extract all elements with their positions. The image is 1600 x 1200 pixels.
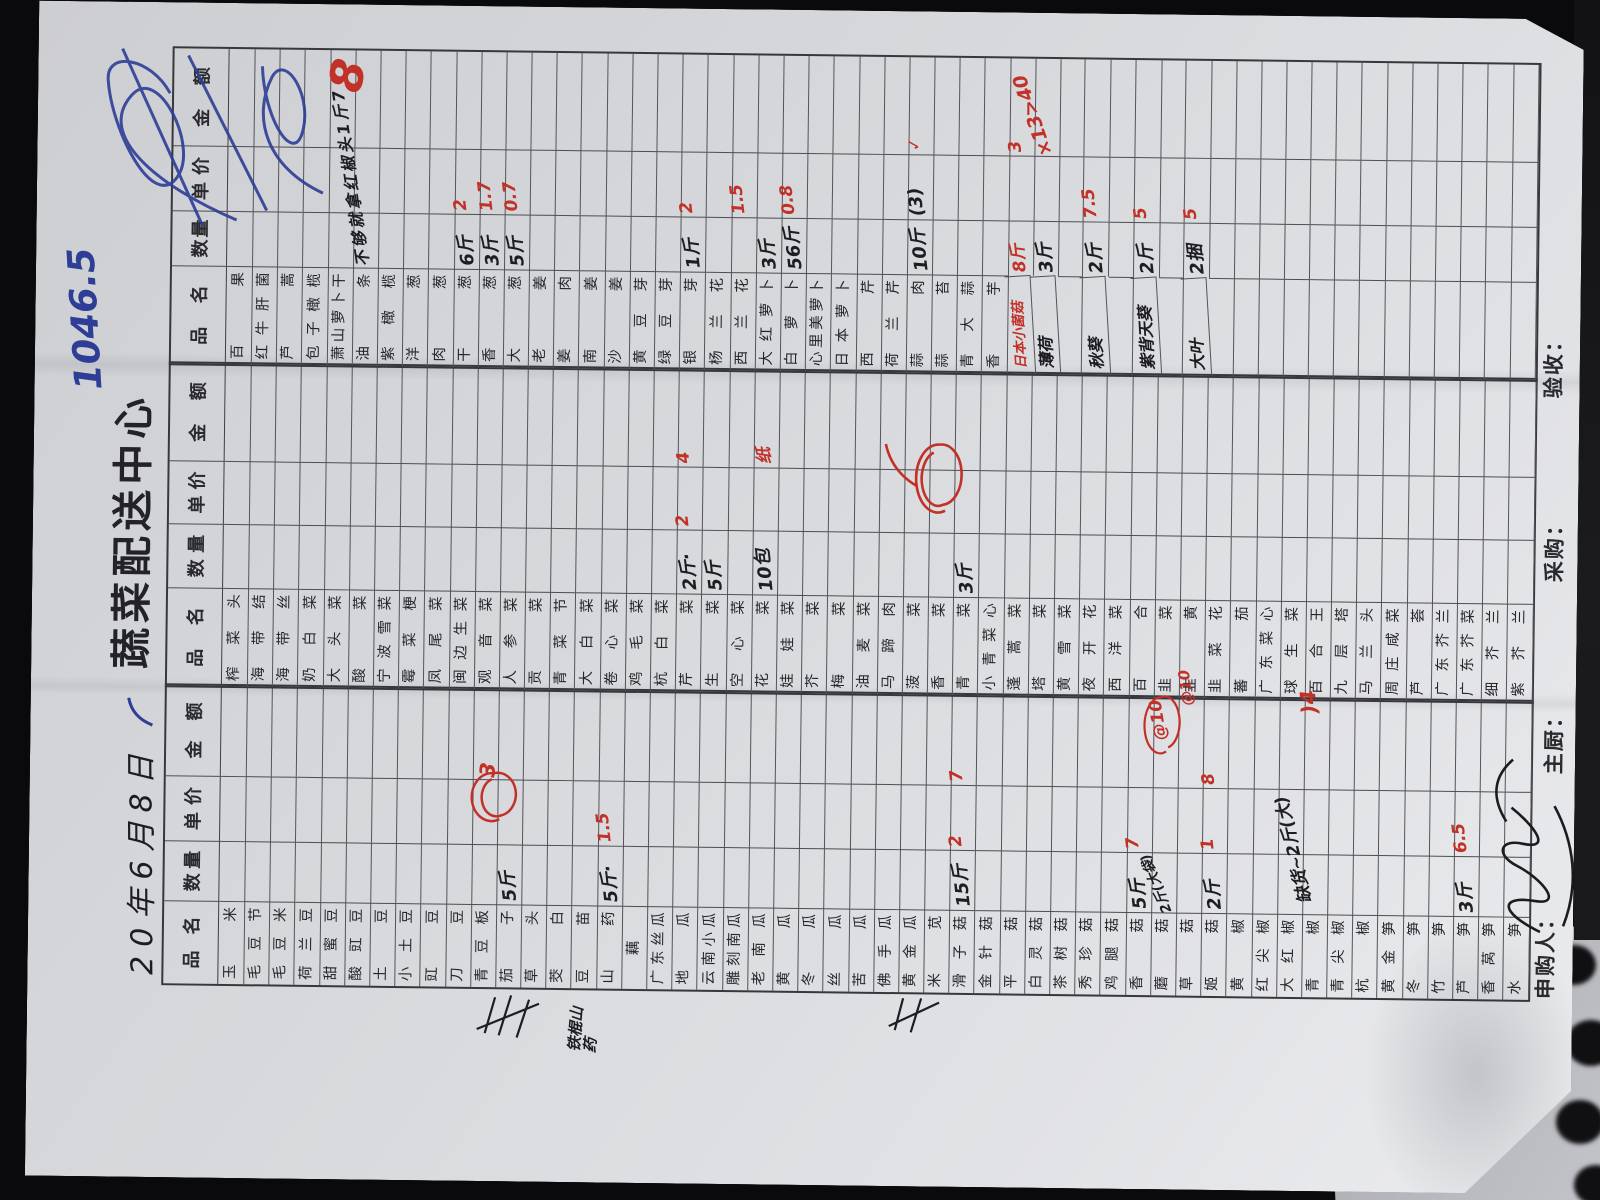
qty-cell: 5斤· <box>597 845 624 905</box>
item-name: 球生菜 <box>1280 601 1307 699</box>
item-name-char: 蒿 <box>1003 640 1028 655</box>
qty-cell <box>1360 225 1386 280</box>
price-cell <box>1001 785 1028 850</box>
item-name: 闽边生菜 <box>449 591 476 689</box>
price-value: (3) <box>904 186 928 217</box>
item-name-char: 子 <box>496 910 521 925</box>
price-cell <box>778 468 805 531</box>
qty-cell <box>1029 534 1056 598</box>
item-name-char: 合 <box>1130 605 1155 620</box>
price-cell <box>648 781 675 846</box>
item-name: 红尖椒 <box>1251 913 1278 996</box>
item-name-char: 小 <box>697 932 722 947</box>
item-name-char: 椒 <box>1226 919 1251 934</box>
item-name <box>1107 277 1133 375</box>
item-row: 黄金笋 <box>1377 700 1406 998</box>
amount-cell <box>699 692 726 782</box>
price-value: 6.5 <box>1449 822 1472 854</box>
item-name-char: 荷 <box>881 352 906 367</box>
item-row: 广东芥兰 <box>1431 379 1460 701</box>
item-name: 豆苗 <box>571 905 598 988</box>
item-row: 毛豆节 <box>243 686 272 984</box>
item-name-char: 日 <box>830 352 855 367</box>
item-name-char: 珍 <box>1075 946 1100 961</box>
item-row: 凤尾菜 <box>423 366 452 688</box>
item-name: 毛豆米 <box>269 901 296 984</box>
item-name-char: 秀 <box>1075 975 1100 990</box>
item-name-char: 韭 <box>1204 678 1229 693</box>
item-name-char: 小 <box>978 676 1003 691</box>
item-name-char: 油 <box>352 346 377 361</box>
item-name-char: 洋 <box>1104 641 1129 656</box>
item-name-char: 香 <box>1125 975 1150 990</box>
qty-cell <box>806 218 833 273</box>
amount-cell <box>498 689 525 779</box>
item-row: 藕 <box>621 691 650 989</box>
header-char: 量 <box>186 219 212 237</box>
group-2: 品名数量单价金额榨菜头海带结海带丝奶白菜大头菜酸菜宁波雪菜霉菜梗凤尾菜闽边生菜观… <box>165 361 1538 704</box>
amount-cell <box>246 686 273 776</box>
item-name-char: 豆 <box>654 313 679 328</box>
item-row: 心里美萝卜 <box>805 56 834 371</box>
item-row: 土豆 <box>369 688 398 986</box>
item-name-char: 黄 <box>772 971 797 986</box>
amount-cell <box>380 51 407 148</box>
item-row: 红牛肝菌 <box>251 49 280 364</box>
amount-cell <box>372 688 399 778</box>
price-cell <box>958 155 985 220</box>
item-name: 韭菜花 <box>1204 600 1231 698</box>
price-cell: 5 <box>1134 157 1161 222</box>
price-value: 2 <box>946 834 967 848</box>
item-name-char: 广 <box>1456 681 1481 696</box>
item-name: 洋葱 <box>402 268 429 366</box>
item-name-char: 菜 <box>1104 605 1129 620</box>
qty-cell <box>1227 853 1254 913</box>
item-name-char: 姬 <box>1201 976 1226 991</box>
amount-cell <box>1505 702 1532 792</box>
item-row: 芥菜 <box>801 371 830 693</box>
qty-cell: 3斤 <box>1033 221 1060 276</box>
item-name: 黄豆芽 <box>629 271 656 369</box>
item-name-char: 青 <box>1326 978 1351 993</box>
item-name: 包子橄榄 <box>301 267 328 365</box>
item-name <box>1510 282 1536 380</box>
qty-cell <box>899 849 926 909</box>
qty-cell <box>223 524 250 588</box>
item-row: 酸豇豆 <box>344 687 373 985</box>
item-name-char: 蒜 <box>957 281 982 296</box>
price-cell: 0.7 <box>505 149 532 214</box>
item-row: 山药5斤·1.5 <box>596 691 625 989</box>
item-row: 佛手瓜 <box>873 694 902 992</box>
item-row: 榨菜头 <box>222 364 251 686</box>
item-name: 大头菜 <box>323 589 350 687</box>
qty-cell <box>1335 224 1361 279</box>
price-cell <box>1076 786 1103 851</box>
item-row: 玉米 <box>218 686 247 984</box>
item-name-char: 菇 <box>1075 917 1100 932</box>
amount-cell <box>447 689 474 779</box>
item-name-char: 夜 <box>1078 677 1103 692</box>
amount-cell <box>1480 701 1507 791</box>
price-cell <box>1332 474 1359 537</box>
item-name: 酸菜 <box>348 589 375 687</box>
item-name-char: 杨 <box>704 350 729 365</box>
item-name-char: 苋 <box>924 915 949 930</box>
price-cell <box>1307 474 1334 537</box>
item-name: 心里美萝卜 <box>805 273 832 371</box>
item-name: 沙姜 <box>604 271 631 369</box>
item-name: 大红椒 <box>1276 914 1303 997</box>
price-cell <box>1504 792 1531 857</box>
item-name-char: 卜 <box>831 279 856 294</box>
item-name-char: 葱 <box>428 274 453 289</box>
photo-scene: 蔬菜配送中心 20年6月8日 品名数量单价金额玉米毛豆节毛豆米荷兰豆甜蜜豆酸豇豆… <box>0 0 1600 1200</box>
item-name-char: 菇 <box>1126 918 1151 933</box>
item-row: 广东芥菜 <box>1456 379 1485 701</box>
item-row: 球生菜 <box>1280 377 1309 699</box>
item-name-char: 豆 <box>446 910 471 925</box>
amount-cell: 4 <box>678 369 705 466</box>
header-cell-price: 单价 <box>169 460 225 524</box>
price-cell <box>1361 160 1387 225</box>
item-name: 金针菇 <box>974 910 1001 993</box>
amount-cell <box>1002 695 1029 785</box>
qty-cell <box>1079 534 1106 598</box>
amount-cell <box>707 55 734 152</box>
item-name: 豇豆 <box>420 903 447 986</box>
qty-cell <box>698 847 725 907</box>
qty-value: 2斤 <box>1198 878 1227 911</box>
amount-cell <box>1056 374 1083 471</box>
item-name-char: 笋 <box>1428 922 1453 937</box>
item-name-char: 凤 <box>423 669 448 684</box>
order-form-paper: 蔬菜配送中心 20年6月8日 品名数量单价金额玉米毛豆节毛豆米荷兰豆甜蜜豆酸豇豆… <box>25 1 1584 1195</box>
qty-cell <box>1407 538 1434 602</box>
price-cell <box>850 784 877 849</box>
price-cell <box>1285 159 1311 224</box>
qty-value: 2捆 <box>1181 243 1210 276</box>
amount-cell <box>1156 375 1183 472</box>
amount-cell <box>1160 60 1186 157</box>
item-name-char: 头 <box>323 631 348 646</box>
qty-cell <box>378 213 405 268</box>
price-cell <box>224 461 251 524</box>
price-cell: 0.8 <box>782 153 809 218</box>
item-name-char: 萝 <box>780 315 805 330</box>
item-name-char: 南 <box>748 942 773 957</box>
item-name-char: 豆 <box>395 909 420 924</box>
qty-cell: 5斤 <box>702 530 729 594</box>
qty-cell <box>932 220 959 275</box>
item-name-char: 瓜 <box>672 912 697 927</box>
item-name-char: 边 <box>449 645 474 660</box>
qty-cell <box>1382 538 1409 602</box>
item-name: 竹笋 <box>1427 916 1454 999</box>
qty-cell <box>1230 536 1257 600</box>
item-name: 霉菜梗 <box>398 590 425 688</box>
item-name: 娃娃菜 <box>776 595 803 693</box>
red-price-eggplant: 3 <box>475 761 501 778</box>
item-name-char: 西 <box>1103 677 1128 692</box>
item-name-char: 毛 <box>269 965 294 980</box>
item-name: 芦荟 <box>1406 602 1433 700</box>
item-row: 白萝卜56斤0.8 <box>780 56 809 371</box>
price-cell <box>1336 159 1362 224</box>
item-name-char: 藕 <box>622 941 647 956</box>
qty-value: 2斤 <box>1080 242 1109 275</box>
amount-cell <box>879 372 906 469</box>
item-name-char: 尖 <box>1327 949 1352 964</box>
price-cell <box>526 465 553 528</box>
qty-cell: 1斤 <box>680 216 707 271</box>
qty-cell <box>1378 855 1405 915</box>
qty-cell <box>299 525 326 589</box>
qty-cell <box>580 215 607 270</box>
item-name-char: 豇 <box>420 967 445 982</box>
qty-cell <box>345 842 372 902</box>
item-row: 生菜5斤 <box>700 370 729 692</box>
price-cell: 7.5 <box>1084 156 1111 221</box>
price-cell <box>1508 477 1535 540</box>
item-name-char: 心 <box>978 603 1003 618</box>
amount-cell <box>1085 59 1112 156</box>
price-cell <box>832 153 859 218</box>
item-name-char: 菜 <box>475 597 500 612</box>
item-name-char: 塔 <box>1028 676 1053 691</box>
item-name: 酸豇豆 <box>344 902 371 985</box>
item-name-char: 瓜 <box>723 913 748 928</box>
qty-cell <box>425 526 452 590</box>
header-char: 名 <box>186 285 212 303</box>
amount-cell <box>1182 376 1209 473</box>
item-name-char: 菜 <box>1381 608 1406 623</box>
item-name-char: 榄 <box>378 274 403 289</box>
item-name-char: 大 <box>575 671 600 686</box>
item-name-char: 香 <box>927 675 952 690</box>
item-name-char: 海 <box>247 667 272 682</box>
item-row: 马蹄肉 <box>877 372 906 694</box>
price-cell <box>724 782 751 847</box>
item-name-char: 芋 <box>982 281 1007 296</box>
item-row: 周庄咸菜 <box>1380 378 1409 700</box>
item-row: 苦瓜 <box>848 694 877 992</box>
item-row: 紫芥兰 <box>1506 380 1535 702</box>
amount-cell <box>451 367 478 464</box>
amount-cell <box>1455 701 1482 791</box>
price-cell <box>1026 786 1053 851</box>
price-cell <box>404 148 431 213</box>
item-name-char: 观 <box>474 669 499 684</box>
item-name: 紫芥兰 <box>1506 604 1533 702</box>
header-char: 名 <box>182 607 208 625</box>
item-name-char: 波 <box>373 644 398 659</box>
qty-cell <box>1432 539 1459 603</box>
item-name-char: 豆 <box>244 936 269 951</box>
amount-cell <box>1311 62 1337 159</box>
item-name-char: 细 <box>1481 682 1506 697</box>
price-cell <box>249 461 276 524</box>
price-cell <box>1437 161 1463 226</box>
price-cell <box>245 776 272 841</box>
header-cell-qty: 数量 <box>164 840 220 901</box>
qty-cell <box>475 527 502 591</box>
price-cell <box>933 155 960 220</box>
qty-cell <box>521 845 548 905</box>
amount-cell <box>1027 696 1054 786</box>
item-name-char: 刀 <box>445 967 470 982</box>
item-name-char: 瓜 <box>748 913 773 928</box>
price-cell <box>346 777 373 842</box>
qty-cell <box>748 847 775 907</box>
item-name-char: 卜 <box>327 291 352 306</box>
item-name-char: 瓜 <box>647 912 672 927</box>
price-cell <box>580 150 607 215</box>
qty-cell <box>399 526 426 590</box>
item-name <box>1258 279 1284 377</box>
item-name-char: 土 <box>395 938 420 953</box>
amount-cell <box>825 693 852 783</box>
price-cell <box>749 782 776 847</box>
price-cell <box>576 465 603 528</box>
item-row: 小土豆 <box>395 688 424 986</box>
amount-cell <box>271 687 298 777</box>
item-name-char: 兰 <box>1507 610 1532 625</box>
amount-cell <box>930 373 957 470</box>
item-row: 西兰花1.5 <box>730 55 759 370</box>
item-name: 茄子 <box>495 904 522 987</box>
item-name-char: 芦 <box>1406 681 1431 696</box>
item-name-char: 草 <box>1175 976 1200 991</box>
qty-cell <box>1486 226 1512 281</box>
qty-cell <box>1356 538 1383 602</box>
price-cell <box>1034 156 1061 221</box>
item-name: 百果 <box>226 266 253 364</box>
item-name-char: 心 <box>600 635 625 650</box>
amount-cell <box>775 693 802 783</box>
item-name: 青菜节 <box>549 592 576 690</box>
item-name-char: 菜 <box>1255 631 1280 646</box>
item-name-char: 空 <box>726 673 751 688</box>
header-cell-amount: 金额 <box>170 363 226 461</box>
item-name-char: 大 <box>503 348 528 363</box>
price-cell <box>699 782 726 847</box>
item-name-char: 芦 <box>276 345 301 360</box>
amount-cell <box>325 365 352 462</box>
item-name-char: 菜 <box>399 632 424 647</box>
item-name-char: 菜 <box>222 630 247 645</box>
qty-cell <box>403 213 430 268</box>
amount-cell <box>1060 59 1086 156</box>
item-name-char: 王 <box>1306 607 1331 622</box>
item-name-char: 豆 <box>295 908 320 923</box>
header-char: 金 <box>184 424 210 442</box>
item-name: 观音菜 <box>474 591 501 689</box>
price-cell: 1.5 <box>731 152 758 217</box>
item-name: 土豆 <box>369 903 396 986</box>
qty-cell <box>1281 537 1308 601</box>
price-value: 1.5 <box>726 183 749 215</box>
qty-cell <box>1205 536 1232 600</box>
item-name-char: 杭 <box>650 672 675 687</box>
item-name-char: 开 <box>1079 641 1104 656</box>
item-name-char: 姜 <box>579 276 604 291</box>
item-name-char: 菇 <box>949 916 974 931</box>
price-cell <box>296 777 323 842</box>
price-cell <box>551 465 578 528</box>
item-name-char: 广 <box>1255 679 1280 694</box>
item-name-char: 滑 <box>949 973 974 988</box>
amount-cell <box>279 50 306 147</box>
item-row <box>1233 61 1262 376</box>
item-name-char: 甜 <box>319 966 344 981</box>
handwritten-overlays: 1046.58不够就拿红椒头1斤7×13>40@10@10)4缺货~2斤(大)铁… <box>25 1 39 1176</box>
item-name: 塔菜 <box>1028 598 1055 696</box>
item-name-char: 瓜 <box>874 915 899 930</box>
item-row: 老姜 <box>528 53 557 368</box>
price-cell <box>1483 476 1510 539</box>
price-cell <box>1479 791 1506 856</box>
item-name-char: 包 <box>301 345 326 360</box>
item-name-char: 菜 <box>1205 642 1230 657</box>
item-name-char: 广 <box>1431 681 1456 696</box>
qty-cell <box>1504 857 1531 917</box>
amount-cell <box>858 57 885 154</box>
item-name-char: 百 <box>226 344 251 359</box>
header-row: 品名数量单价金额 <box>167 363 226 686</box>
price-cell <box>321 777 348 842</box>
qty-cell <box>1260 224 1286 279</box>
item-name-char: 菇 <box>975 916 1000 931</box>
item-name-char: 白 <box>651 635 676 650</box>
item-row: 大白菜 <box>574 368 603 690</box>
item-name-char: 梅 <box>826 674 851 689</box>
item-name-char: 菇 <box>1176 919 1201 934</box>
item-row: 香菇5斤7 <box>1125 697 1154 995</box>
item-name-char: 菜 <box>852 602 877 617</box>
item-name: 芥菜 <box>801 595 828 693</box>
item-name-char: 茄 <box>495 968 520 983</box>
item-name-char: 周 <box>1380 681 1405 696</box>
item-name: 梅菜 <box>826 595 853 693</box>
item-name-char: 树 <box>1050 946 1075 961</box>
item-name-char: 菇 <box>1151 918 1176 933</box>
qty-value: 56斤 <box>777 225 808 271</box>
item-name-char: 生 <box>1280 643 1305 658</box>
item-name-char: 鸡 <box>625 671 650 686</box>
item-name-char: 雪 <box>374 620 399 635</box>
item-name-char: 卜 <box>756 278 781 293</box>
item-name-char: 肉 <box>878 602 903 617</box>
item-name: 平菇 <box>999 910 1026 993</box>
item-name: 黄椒 <box>1226 913 1253 996</box>
item-row: 广东丝瓜 <box>646 691 675 989</box>
item-name-char: 白 <box>780 351 805 366</box>
price-cell <box>799 783 826 848</box>
item-name: 白灵菇 <box>1024 911 1051 994</box>
item-name-char: 兰 <box>294 937 319 952</box>
item-row: 青椒 <box>1301 699 1330 997</box>
item-name-char: 蕃 <box>1229 679 1254 694</box>
qty-cell: 2捆 <box>1184 223 1211 278</box>
item-row: 豇豆 <box>420 688 449 986</box>
item-name-char: 生 <box>700 672 725 687</box>
item-row: 芦蒿 <box>276 50 305 365</box>
price-cell <box>602 466 629 529</box>
qty-cell: 2斤 <box>1201 853 1228 913</box>
amount-cell <box>254 49 281 146</box>
